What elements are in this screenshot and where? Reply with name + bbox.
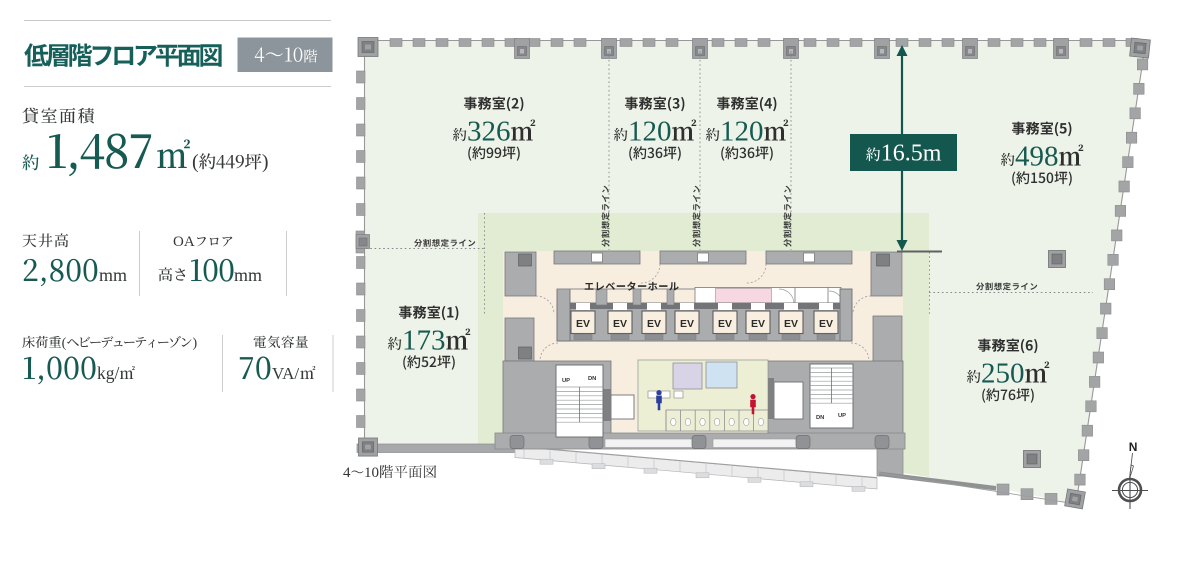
- svg-text:498: 498: [1015, 141, 1059, 173]
- svg-text:EV: EV: [718, 318, 732, 330]
- svg-text:): ): [193, 336, 198, 351]
- svg-text:(: (: [192, 151, 199, 173]
- svg-text:): ): [262, 151, 269, 173]
- svg-text:mm: mm: [234, 265, 262, 285]
- svg-text:173: 173: [402, 325, 446, 357]
- svg-text:VA/: VA/: [272, 364, 299, 383]
- svg-text:16.5m: 16.5m: [881, 141, 942, 167]
- svg-text:120: 120: [720, 116, 764, 148]
- svg-text:kg/: kg/: [97, 363, 120, 383]
- svg-text:UP: UP: [838, 413, 846, 419]
- svg-text:mm: mm: [99, 265, 127, 285]
- svg-text:EV: EV: [680, 318, 694, 330]
- svg-text:DN: DN: [588, 376, 596, 382]
- svg-text:DN: DN: [816, 415, 824, 421]
- svg-text:EV: EV: [784, 318, 798, 330]
- svg-text:EV: EV: [647, 318, 661, 330]
- svg-text:4: 4: [343, 465, 351, 481]
- svg-text:UP: UP: [562, 378, 570, 384]
- svg-text:EV: EV: [613, 318, 627, 330]
- svg-text:EV: EV: [819, 318, 833, 330]
- svg-text:250: 250: [981, 358, 1025, 390]
- svg-text:EV: EV: [576, 318, 590, 330]
- svg-text:120: 120: [628, 116, 672, 148]
- svg-text:OA: OA: [173, 234, 195, 250]
- svg-text:N: N: [1129, 440, 1138, 454]
- svg-text:EV: EV: [751, 318, 765, 330]
- svg-text:326: 326: [467, 116, 511, 148]
- svg-text:(: (: [62, 336, 67, 351]
- svg-text:10: 10: [364, 465, 379, 481]
